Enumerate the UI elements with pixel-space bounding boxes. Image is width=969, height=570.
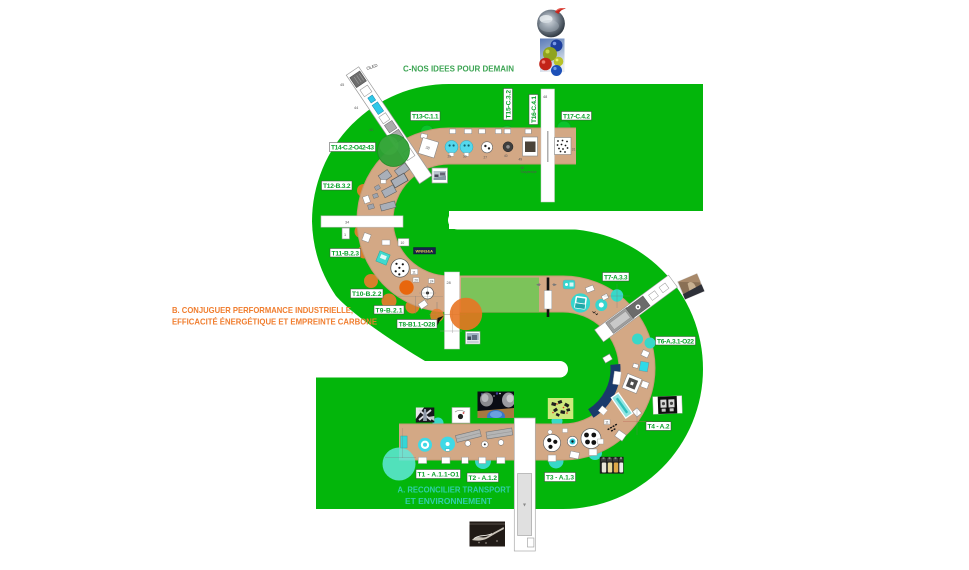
svg-text:T17-C.4.2: T17-C.4.2 <box>563 113 590 120</box>
svg-text:B. CONJUGUER PERFORMANCE INDUS: B. CONJUGUER PERFORMANCE INDUSTRIELLE, <box>172 306 353 315</box>
svg-text:ET ENVIRONNEMENT: ET ENVIRONNEMENT <box>405 496 493 506</box>
svg-text:WNN3&A: WNN3&A <box>416 249 434 254</box>
svg-text:46: 46 <box>369 128 373 132</box>
svg-text:31: 31 <box>572 148 576 152</box>
svg-text:T15-C.3.2: T15-C.3.2 <box>506 90 513 119</box>
svg-text:EFFICACITÉ ÉNERGÉTIQUE ET EMPR: EFFICACITÉ ÉNERGÉTIQUE ET EMPREINTE CARB… <box>172 317 378 327</box>
svg-text:29: 29 <box>448 155 452 159</box>
svg-text:T11-B.2.3: T11-B.2.3 <box>332 250 360 257</box>
svg-text:C-NOS IDEES POUR DEMAIN: C-NOS IDEES POUR DEMAIN <box>403 65 514 74</box>
svg-text:24: 24 <box>430 279 434 283</box>
svg-text:40: 40 <box>504 154 508 158</box>
svg-text:T6-A.3.1-O22: T6-A.3.1-O22 <box>657 338 694 345</box>
svg-text:T4 - A.2: T4 - A.2 <box>648 424 670 431</box>
svg-text:1: 1 <box>344 233 346 237</box>
svg-text:10: 10 <box>401 241 405 245</box>
svg-text:T2 - A.1.2: T2 - A.1.2 <box>469 475 498 482</box>
svg-text:45: 45 <box>340 83 344 87</box>
svg-text:26: 26 <box>414 278 418 282</box>
svg-text:T1 - A.1.1-O1: T1 - A.1.1-O1 <box>418 472 460 479</box>
svg-text:34: 34 <box>345 221 349 225</box>
svg-text:48: 48 <box>543 95 547 99</box>
svg-text:T12-B.3.2: T12-B.3.2 <box>323 183 351 190</box>
svg-text:44: 44 <box>354 106 358 110</box>
svg-text:11: 11 <box>412 270 416 274</box>
svg-text:T13-C.1.1: T13-C.1.1 <box>412 114 439 121</box>
svg-text:A. RECONCILIER TRANSPORT: A. RECONCILIER TRANSPORT <box>398 485 512 495</box>
svg-text:49: 49 <box>519 158 523 162</box>
svg-text:T8-B1.1-O28: T8-B1.1-O28 <box>399 321 436 328</box>
svg-text:T7-A.3.3: T7-A.3.3 <box>604 274 628 281</box>
svg-text:30: 30 <box>463 155 467 159</box>
svg-text:Suspendue: Suspendue <box>521 170 537 174</box>
svg-text:T9-B.2.1: T9-B.2.1 <box>376 307 403 314</box>
svg-text:T14-C.2-O42-43: T14-C.2-O42-43 <box>331 145 374 152</box>
svg-text:T10-B.2.2: T10-B.2.2 <box>352 291 382 298</box>
svg-text:27: 27 <box>484 156 488 160</box>
svg-text:T3 - A.1.3: T3 - A.1.3 <box>546 475 574 482</box>
svg-text:T16-C.4.1: T16-C.4.1 <box>531 96 538 123</box>
svg-text:28: 28 <box>447 281 451 285</box>
svg-text:11: 11 <box>605 421 609 425</box>
